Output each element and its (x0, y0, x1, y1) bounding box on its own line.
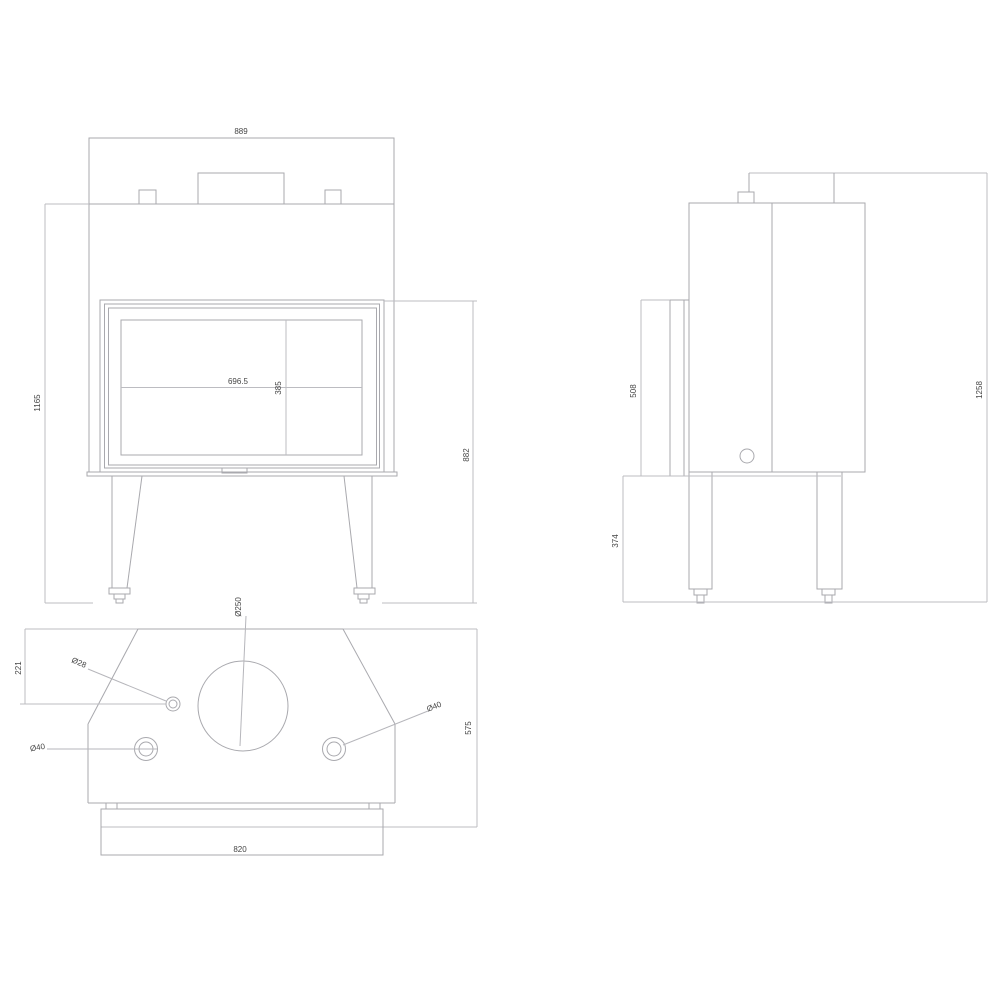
hole-left-label: Ø40 (29, 742, 46, 754)
top-back-offset-label: 221 (14, 661, 23, 675)
top-knob-right (325, 190, 341, 204)
base-tab-left (106, 803, 117, 809)
front-total-height-label: 1165 (33, 394, 42, 412)
base-tab-right (369, 803, 380, 809)
hole-small-inner (169, 700, 177, 708)
front-left-leg-inner (127, 476, 142, 588)
side-front-leg (689, 472, 712, 589)
flue-diameter-label: Ø250 (234, 597, 243, 617)
hole-right-leader (343, 711, 428, 745)
glass-height-label: 385 (274, 381, 283, 395)
top-knob-left (139, 190, 156, 204)
hole-small-leader (88, 669, 166, 701)
side-top-knob (738, 192, 754, 203)
front-left-foot-stem (114, 594, 125, 599)
hole-right-outer (323, 738, 346, 761)
front-width-label: 889 (234, 127, 248, 136)
technical-drawing: 889 1165 882 696.5 385 50 (0, 0, 1000, 1000)
side-door-height-label: 508 (629, 384, 638, 398)
side-front-foot (694, 589, 707, 595)
flue-collar-front (198, 173, 284, 204)
top-view: 221 575 Ø250 Ø28 Ø40 Ø40 820 (14, 597, 477, 855)
glass-width-label: 696.5 (228, 377, 249, 386)
top-left-chamfer (88, 629, 138, 724)
side-rear-foot (822, 589, 835, 595)
side-damper-knob (740, 449, 754, 463)
front-right-foot (354, 588, 375, 594)
hole-right-label: Ø40 (425, 699, 443, 713)
drawing-page: 889 1165 882 696.5 385 50 (0, 0, 1000, 1000)
side-total-height-label: 1258 (975, 381, 984, 399)
front-right-foot-stem (358, 594, 369, 599)
flue-leader-line (240, 616, 246, 746)
door-frame-mid (105, 304, 380, 468)
front-view: 889 1165 882 696.5 385 (33, 127, 477, 603)
door-frame-outer (100, 300, 384, 472)
hole-small-outer (166, 697, 180, 711)
side-rear-leg (817, 472, 842, 589)
door-frame-inner (109, 308, 377, 465)
hole-right-inner (327, 742, 341, 756)
front-left-foot-pad (116, 599, 123, 603)
top-right-chamfer (343, 629, 395, 724)
side-leg-height-label: 374 (611, 534, 620, 548)
front-right-foot-pad (360, 599, 367, 603)
side-body-outline (689, 203, 865, 472)
front-casing-outline (89, 138, 394, 472)
front-left-foot (109, 588, 130, 594)
front-body-height-label: 882 (462, 448, 471, 462)
front-right-leg-inner (344, 476, 357, 588)
top-depth-label: 575 (464, 721, 473, 735)
top-base-width-label: 820 (233, 845, 247, 854)
side-view: 508 374 1258 (611, 173, 987, 603)
hole-small-label: Ø28 (70, 656, 88, 670)
